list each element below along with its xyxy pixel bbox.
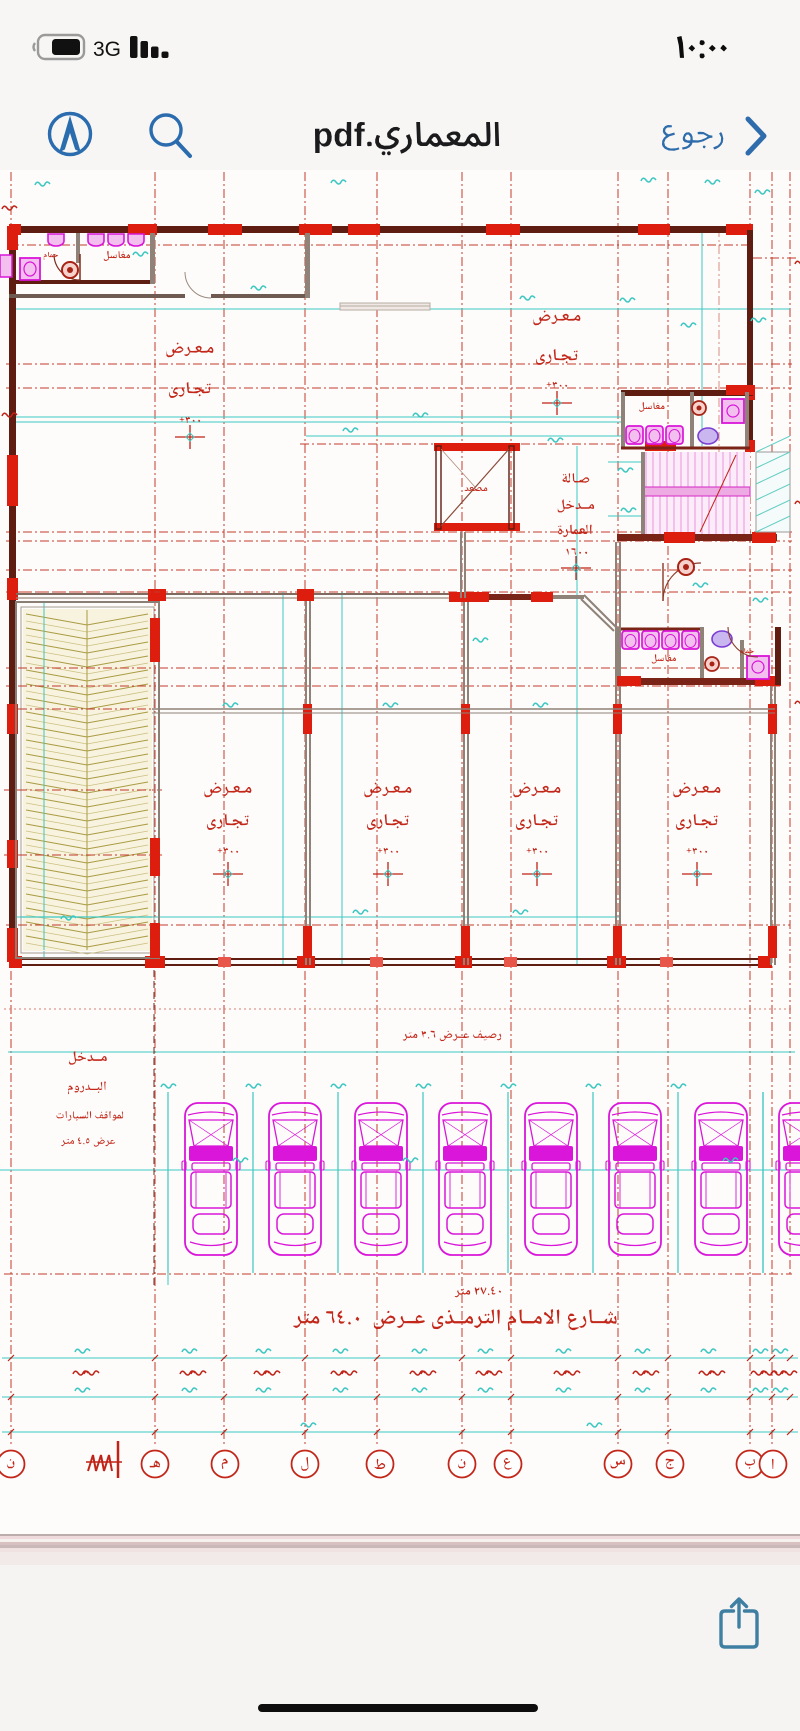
- svg-text:3G: 3G: [93, 38, 121, 61]
